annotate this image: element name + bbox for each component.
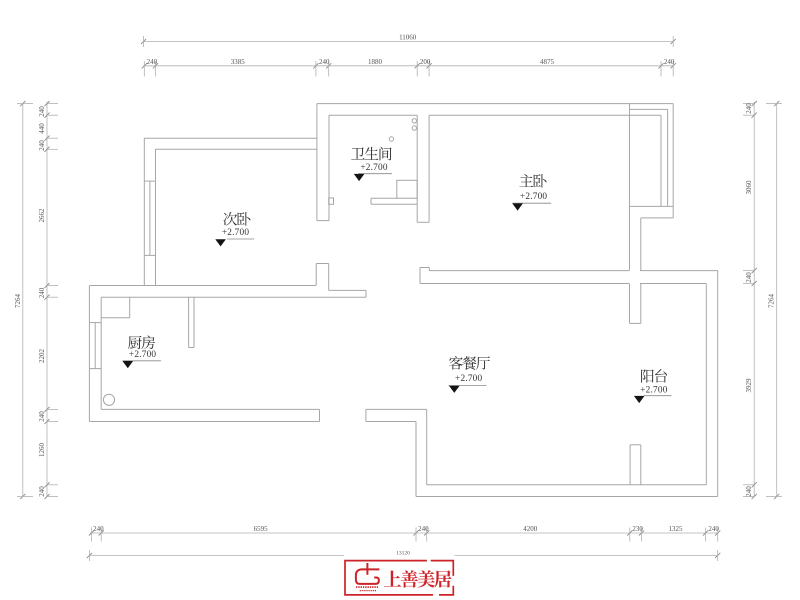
svg-text:2202: 2202	[38, 349, 46, 364]
svg-text:240: 240	[319, 58, 330, 66]
svg-text:3060: 3060	[745, 180, 753, 195]
svg-text:440: 440	[38, 123, 46, 134]
svg-text:+2.700: +2.700	[455, 374, 483, 384]
svg-text:240: 240	[745, 486, 753, 497]
svg-text:240: 240	[418, 525, 429, 533]
svg-text:+2.700: +2.700	[520, 192, 548, 202]
svg-text:240: 240	[38, 140, 46, 151]
svg-text:230: 230	[632, 525, 643, 533]
svg-text:2662: 2662	[38, 208, 46, 223]
svg-text:240: 240	[93, 525, 104, 533]
svg-text:7264: 7264	[14, 294, 22, 309]
svg-text:240: 240	[147, 58, 158, 66]
svg-text:240: 240	[708, 525, 719, 533]
svg-text:1325: 1325	[669, 525, 684, 533]
svg-text:240: 240	[745, 103, 753, 114]
svg-text:11060: 11060	[399, 34, 417, 42]
svg-text:+2.700: +2.700	[360, 163, 388, 173]
svg-text:+2.700: +2.700	[640, 385, 668, 395]
svg-text:4200: 4200	[523, 525, 538, 533]
svg-text:240: 240	[38, 287, 46, 298]
svg-text:200: 200	[420, 58, 431, 66]
svg-text:13120: 13120	[396, 551, 410, 557]
svg-text:3385: 3385	[231, 58, 246, 66]
svg-text:3929: 3929	[745, 378, 753, 393]
svg-text:240: 240	[745, 272, 753, 283]
svg-text:6595: 6595	[254, 525, 269, 533]
svg-text:+2.700: +2.700	[129, 350, 157, 360]
svg-text:1260: 1260	[38, 443, 46, 458]
svg-text:240: 240	[38, 411, 46, 422]
svg-text:+2.700: +2.700	[222, 228, 250, 238]
svg-text:240: 240	[664, 58, 675, 66]
svg-text:1880: 1880	[368, 58, 383, 66]
svg-text:240: 240	[38, 486, 46, 497]
svg-text:7264: 7264	[768, 294, 776, 309]
svg-text:4875: 4875	[540, 58, 555, 66]
svg-text:240: 240	[38, 106, 46, 117]
